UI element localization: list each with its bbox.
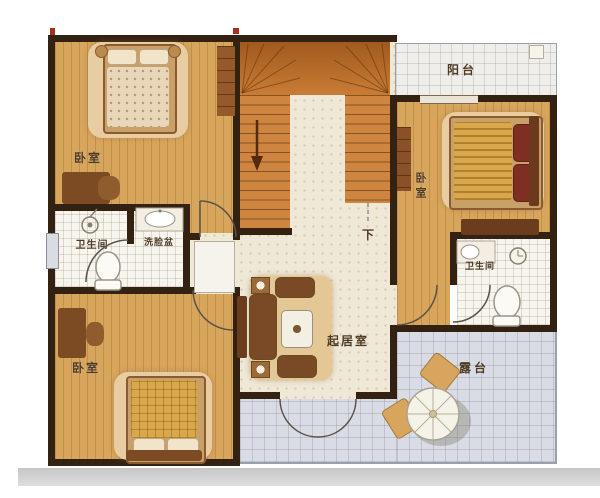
room-label-bathroom-right: 卫生间 [452,259,508,272]
room-label-bedroom-right: 卧室 [412,158,428,216]
stair-landing [240,42,390,95]
wall-top [48,35,397,42]
duvet [454,122,512,200]
headboard [529,116,539,206]
balcony-corner-column [529,45,544,59]
room-label-bathroom-left: 卫生间 [64,236,120,251]
end-table [251,277,270,294]
sofa [277,355,317,378]
headboard [126,450,202,461]
wall-bath-bottom [48,287,196,294]
wardrobe [397,127,411,191]
coffee-table [281,310,313,348]
bedroom-right-entry-floor [397,232,450,325]
end-table [251,361,270,378]
wall-living-bottom-left [240,392,280,399]
stair-flight-right [345,95,390,203]
stair-flight-left [240,95,290,228]
duvet [107,67,169,127]
wall-hall-right-lower [390,325,397,399]
chair [86,322,104,346]
room-label-washroom: 洗脸盆 [134,235,184,248]
pillow [139,49,169,65]
dimension-marker [50,28,55,35]
room-label-bedroom-bottom-left: 卧室 [58,359,114,376]
wall-right-outer [550,102,557,332]
wall-bath-divider [127,204,134,244]
duvet [131,380,197,438]
pillow [107,49,137,65]
sofa [249,294,277,360]
room-label-bedroom-top-left: 卧室 [60,149,116,166]
wall-bedroom1-door-jamb [183,233,200,240]
hall-cabinet [194,241,235,293]
wall-washroom-right [183,204,190,294]
wardrobe [217,46,235,116]
floor-plan: 卧室 卫生间 洗脸盆 卧室 起居室 下 卧室 卫生间 阳台 露台 [0,0,600,498]
tv-stand [237,296,247,358]
desk [58,308,86,358]
sofa [275,277,315,298]
wall-bathroom-right-bottom [390,325,557,332]
bathroom-right-floor [457,239,550,325]
stairs-down-label: 下 [359,226,379,243]
room-label-terrace: 露台 [446,359,502,376]
wall-bedroom1-bath [48,204,190,211]
window-left-bathroom [46,233,59,269]
wall-living-bottom-right [356,392,397,399]
wall-stair-bottom [240,228,292,235]
wall-hall-right-upper [390,95,397,285]
terrace-floor-right [397,332,557,464]
dimension-marker [233,28,239,34]
bedside-lamp [168,45,181,58]
bottom-shadow-band [18,468,600,486]
terrace-floor-bottom [240,399,397,464]
room-label-balcony: 阳台 [432,61,492,78]
room-label-living-room: 起居室 [316,332,380,349]
balcony-door-window [420,95,478,104]
chair [98,176,120,200]
bedside-lamp [95,45,108,58]
dresser [461,219,539,235]
